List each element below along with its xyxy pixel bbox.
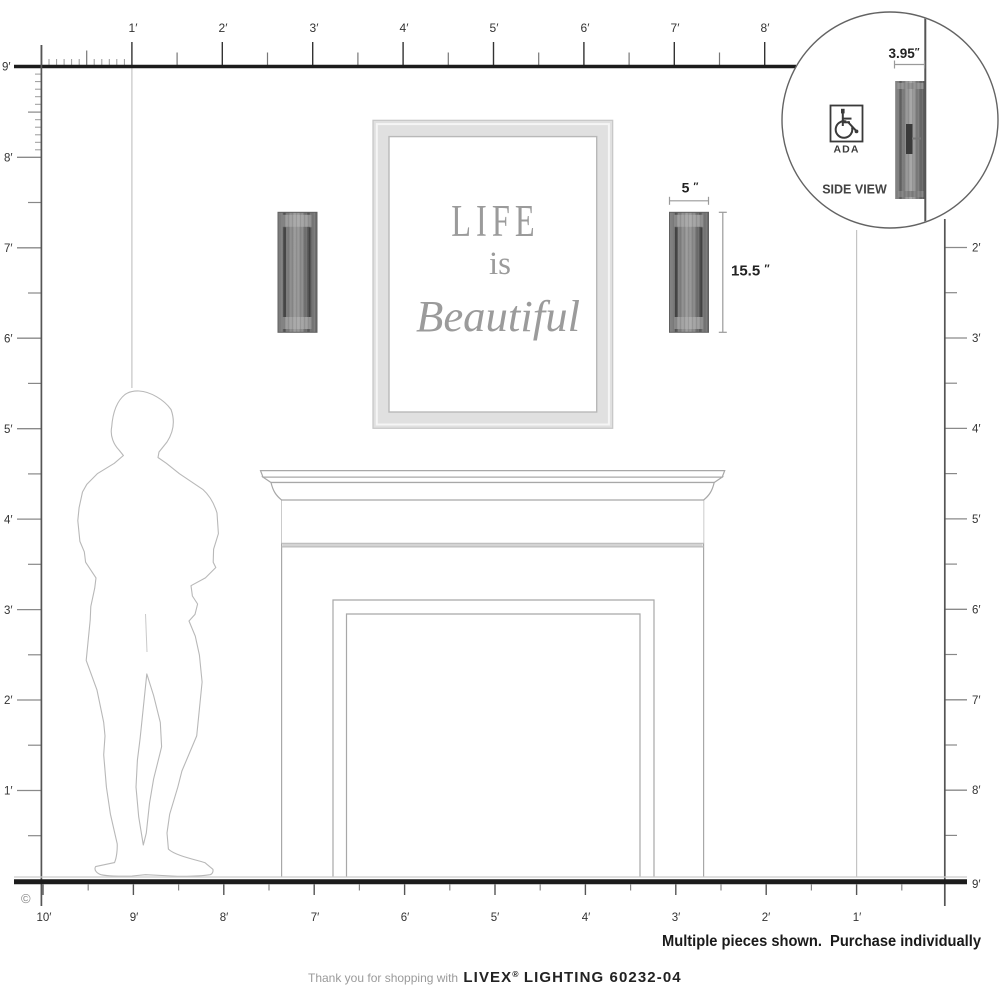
svg-text:6′: 6′ (581, 21, 591, 35)
svg-text:8′: 8′ (4, 153, 13, 165)
svg-text:8′: 8′ (972, 785, 981, 797)
svg-text:is: is (489, 246, 511, 282)
svg-text:4′: 4′ (400, 21, 410, 35)
svg-text:1′: 1′ (4, 786, 13, 798)
svg-text:2′: 2′ (219, 21, 229, 35)
svg-text:Thank you for shopping with LI: Thank you for shopping with LIVEX® LIGHT… (308, 969, 682, 986)
svg-text:5′: 5′ (491, 912, 500, 924)
svg-text:2′: 2′ (972, 243, 981, 255)
svg-text:4′: 4′ (972, 423, 981, 435)
svg-text:10′: 10′ (37, 912, 52, 924)
svg-text:3′: 3′ (972, 333, 981, 345)
svg-text:2′: 2′ (762, 912, 771, 924)
svg-text:6′: 6′ (4, 334, 13, 346)
svg-text:6′: 6′ (972, 604, 981, 616)
svg-text:1′: 1′ (853, 912, 862, 924)
svg-text:SIDE VIEW: SIDE VIEW (822, 183, 887, 197)
svg-text:8′: 8′ (220, 912, 229, 924)
svg-text:5′: 5′ (490, 21, 500, 35)
svg-text:9′: 9′ (2, 62, 11, 74)
svg-text:8′: 8′ (761, 21, 771, 35)
svg-text:7′: 7′ (4, 243, 13, 255)
svg-text:7′: 7′ (972, 695, 981, 707)
svg-text:Beautiful: Beautiful (416, 292, 580, 341)
svg-text:4′: 4′ (4, 514, 13, 526)
svg-text:9′: 9′ (972, 879, 981, 891)
svg-text:3′: 3′ (4, 605, 13, 617)
svg-text:4′: 4′ (582, 912, 591, 924)
svg-text:9′: 9′ (130, 912, 139, 924)
svg-text:1′: 1′ (129, 21, 139, 35)
svg-text:LIFE: LIFE (451, 197, 540, 246)
svg-text:7′: 7′ (311, 912, 320, 924)
svg-text:3′: 3′ (310, 21, 320, 35)
svg-text:ADA: ADA (833, 144, 859, 156)
svg-text:5′: 5′ (4, 424, 13, 436)
svg-text:Multiple pieces shown. Purcha: Multiple pieces shown. Purchase individu… (662, 933, 981, 950)
svg-text:6′: 6′ (401, 912, 410, 924)
svg-text:3′: 3′ (672, 912, 681, 924)
svg-text:©: © (21, 891, 31, 906)
svg-text:2′: 2′ (4, 695, 13, 707)
svg-text:7′: 7′ (671, 21, 681, 35)
svg-text:5′: 5′ (972, 514, 981, 526)
